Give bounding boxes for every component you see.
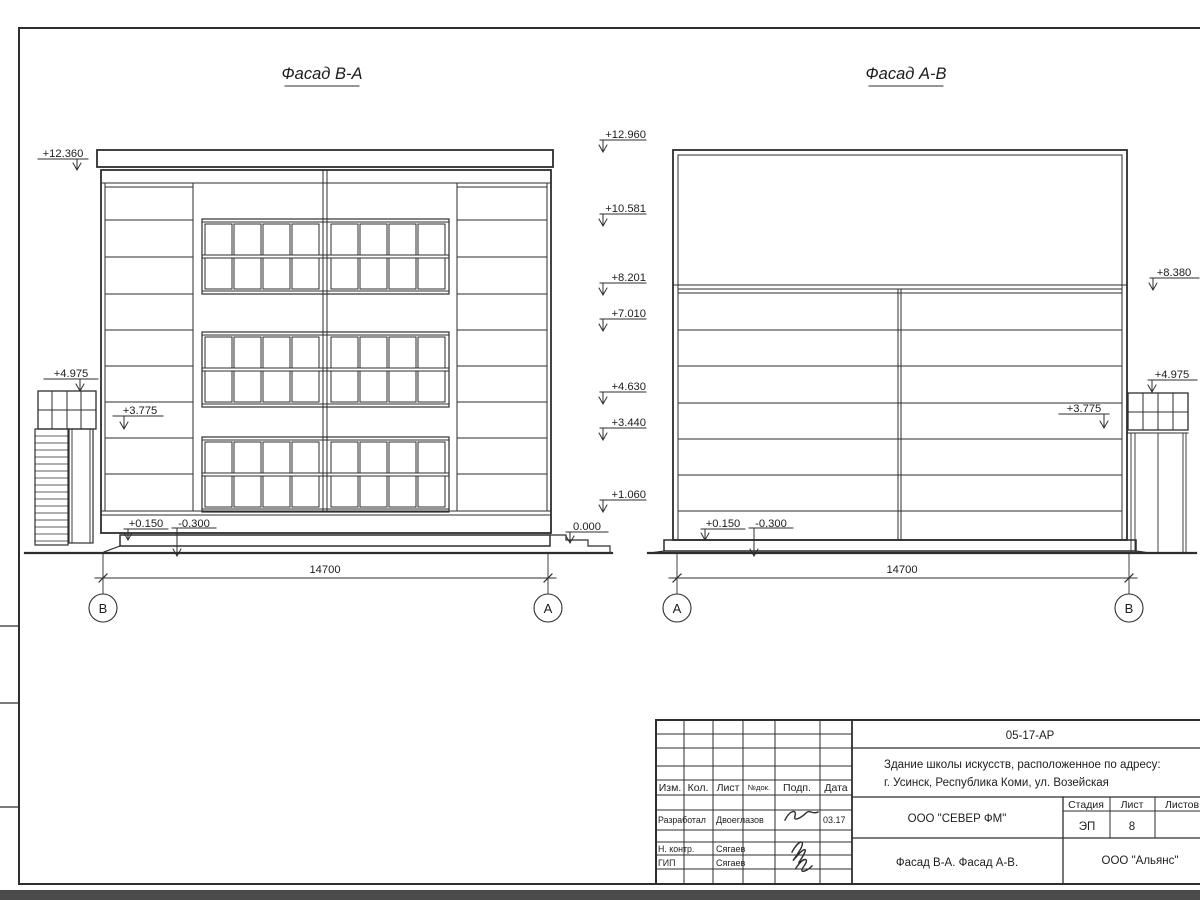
elevation-mark: +8.380 — [1157, 267, 1192, 279]
content-title: Фасад В-А. Фасад А-В. — [896, 857, 1018, 869]
elevation-mark: +7.010 — [611, 308, 646, 320]
drawing-canvas: Фасад В-А Фасад А-В +12.360 +4.975 +3.77… — [0, 0, 1200, 900]
dimension-label: 14700 — [309, 564, 340, 576]
axis-label: А — [544, 601, 553, 616]
signer-role: Разработал — [658, 815, 706, 825]
elevation-mark: +0.150 — [706, 518, 741, 530]
col-ndok: №док. — [748, 783, 770, 792]
axis-label: В — [1125, 601, 1134, 616]
contractor: ООО "Альянс" — [1102, 855, 1179, 867]
elevation-mark: +1.060 — [611, 489, 646, 501]
design-company: ООО "СЕВЕР ФМ" — [908, 813, 1007, 825]
col-list: Лист — [717, 782, 740, 794]
signer-name: Сягаев — [716, 844, 745, 854]
elevation-mark: +10.581 — [605, 203, 646, 215]
facade-left-title: Фасад В-А — [282, 65, 363, 83]
project-address-line2: г. Усинск, Республика Коми, ул. Возейска… — [884, 777, 1109, 789]
col-podp: Подп. — [783, 782, 811, 794]
elevation-mark: +12.960 — [605, 129, 646, 141]
col-kol: Кол. — [688, 782, 709, 794]
signer-name: Двоеглазов — [716, 815, 764, 825]
stage-label: Стадия — [1068, 799, 1104, 811]
elevation-mark: +4.975 — [54, 368, 89, 380]
dimension-label: 14700 — [886, 564, 917, 576]
col-data: Дата — [824, 782, 847, 794]
elevation-mark: +3.775 — [1067, 403, 1102, 415]
elevation-mark: +4.975 — [1155, 369, 1190, 381]
col-izm: Изм. — [659, 782, 682, 794]
signer-role: ГИП — [658, 858, 675, 868]
elevation-mark: +0.150 — [129, 518, 164, 530]
elevation-mark: -0.300 — [755, 518, 787, 530]
axis-label: В — [99, 601, 108, 616]
signer-role: Н. контр. — [658, 844, 694, 854]
doc-number: 05-17-АР — [1006, 730, 1055, 742]
signer-date: 03.17 — [823, 815, 846, 825]
elevation-mark: +3.440 — [611, 417, 646, 429]
drawing-sheet: Фасад В-А Фасад А-В +12.360 +4.975 +3.77… — [0, 0, 1200, 900]
sheet-label: Лист — [1121, 799, 1144, 811]
elevation-mark: 0.000 — [573, 521, 601, 533]
elevation-mark: +3.775 — [123, 405, 158, 417]
signer-name: Сягаев — [716, 858, 745, 868]
sheets-label: Листов — [1165, 799, 1200, 811]
stage-value: ЭП — [1079, 821, 1096, 833]
elevation-mark: +4.630 — [611, 381, 646, 393]
axis-label: А — [673, 601, 682, 616]
project-address-line1: Здание школы искусств, расположенное по … — [884, 759, 1161, 771]
elevation-mark: +8.201 — [611, 272, 646, 284]
elevation-mark: -0.300 — [178, 518, 210, 530]
sheet-value: 8 — [1129, 821, 1135, 833]
facade-right-title: Фасад А-В — [866, 65, 947, 83]
elevation-mark: +12.360 — [43, 148, 84, 160]
